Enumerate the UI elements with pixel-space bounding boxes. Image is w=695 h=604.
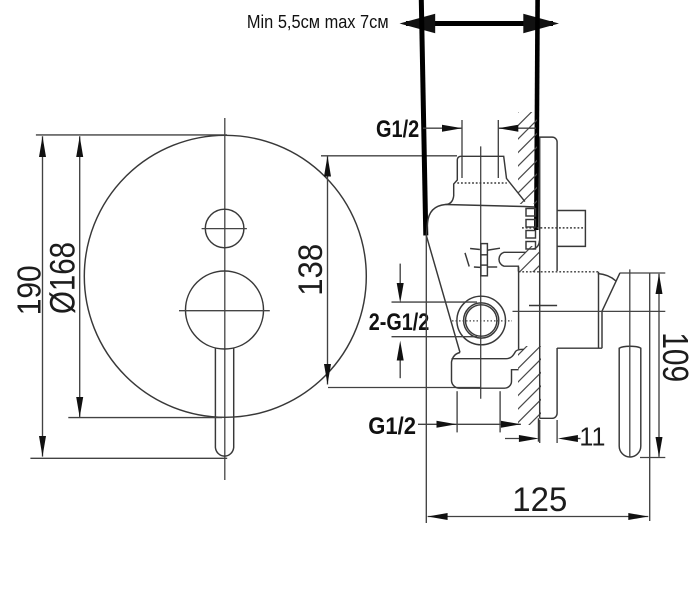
svg-text:11: 11 [579,422,605,452]
svg-text:G1/2: G1/2 [376,116,419,143]
svg-text:2-G1/2: 2-G1/2 [369,309,430,336]
svg-text:138: 138 [292,244,330,296]
svg-text:125: 125 [512,481,567,519]
svg-text:190: 190 [11,265,48,315]
svg-text:109: 109 [655,332,695,382]
svg-text:Min 5,5см max 7см: Min 5,5см max 7см [247,12,389,32]
svg-text:G1/2: G1/2 [368,413,416,440]
svg-text:Ø168: Ø168 [44,242,83,314]
